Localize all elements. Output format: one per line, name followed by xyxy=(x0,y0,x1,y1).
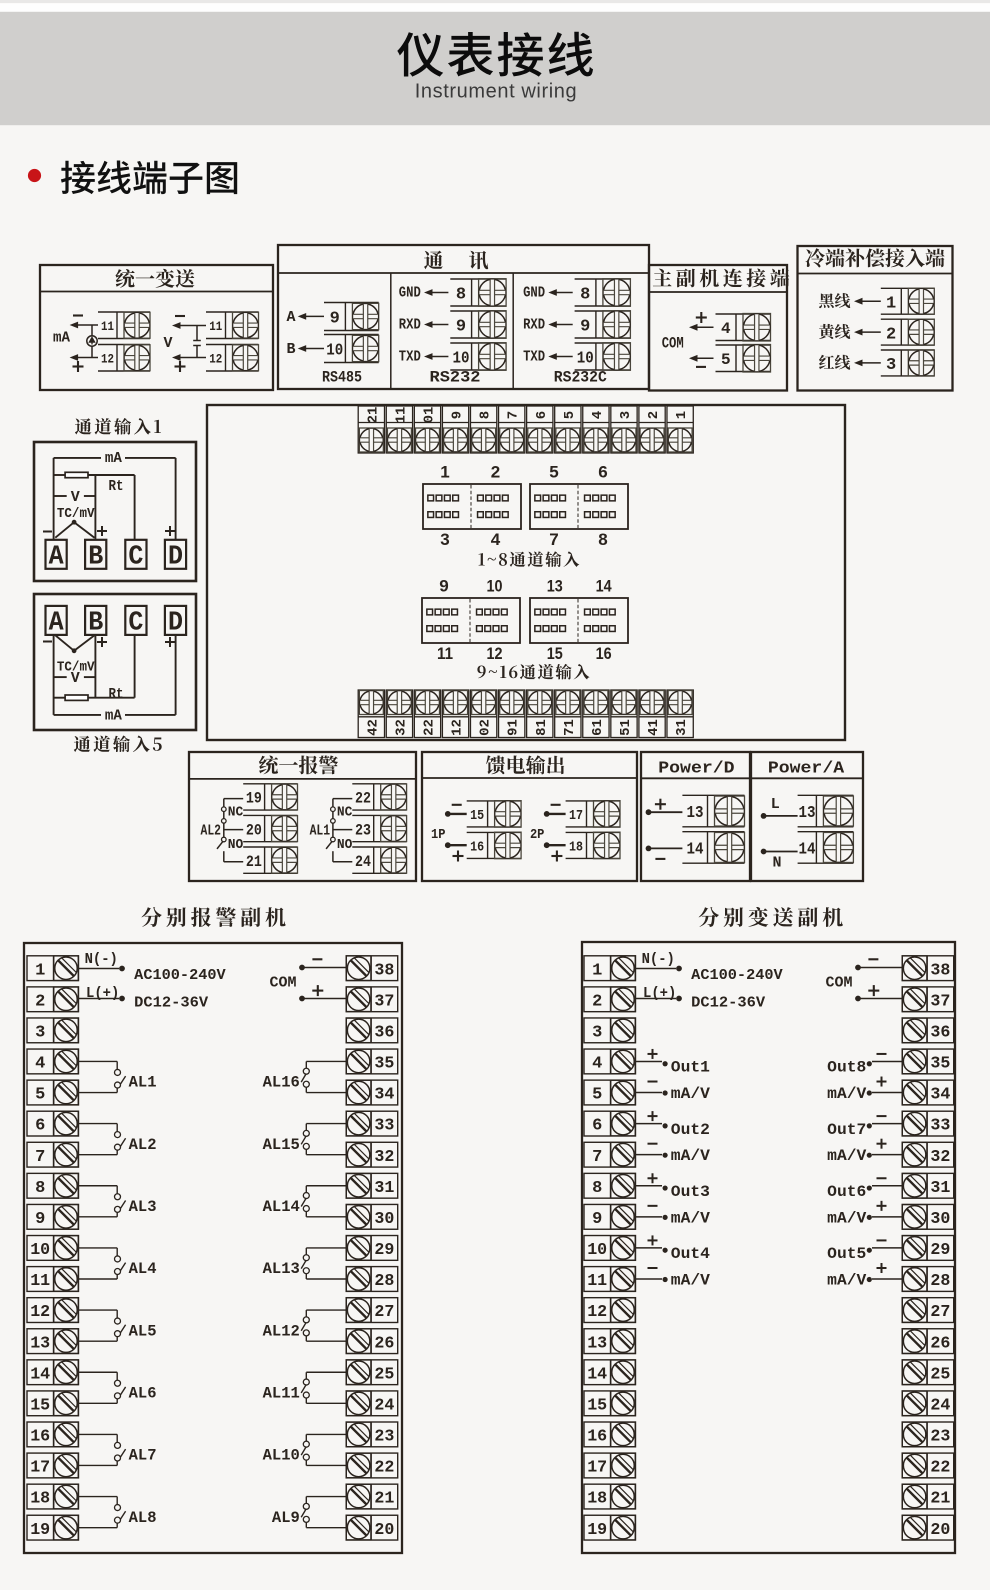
svg-text:9: 9 xyxy=(439,577,448,596)
svg-text:5: 5 xyxy=(35,1086,45,1105)
svg-text:AL2: AL2 xyxy=(201,822,222,839)
svg-text:Rt: Rt xyxy=(109,686,124,703)
svg-text:15: 15 xyxy=(30,1396,50,1415)
svg-text:22: 22 xyxy=(421,719,437,736)
svg-text:C: C xyxy=(128,542,143,572)
svg-text:NO: NO xyxy=(337,837,353,853)
svg-text:mA: mA xyxy=(53,330,70,347)
svg-text:19: 19 xyxy=(30,1521,50,1540)
svg-text:6: 6 xyxy=(35,1117,45,1136)
svg-text:DC12-36V: DC12-36V xyxy=(134,994,208,1011)
svg-text:12: 12 xyxy=(450,719,466,736)
svg-text:29: 29 xyxy=(374,1241,394,1260)
svg-text:TXD: TXD xyxy=(399,349,421,366)
svg-text:10: 10 xyxy=(326,342,343,361)
svg-text:N(-): N(-) xyxy=(85,951,118,968)
svg-text:AL13: AL13 xyxy=(263,1260,300,1278)
svg-text:22: 22 xyxy=(355,790,371,808)
svg-text:AL8: AL8 xyxy=(129,1509,157,1527)
svg-text:Out4: Out4 xyxy=(671,1245,711,1263)
svg-text:AL9: AL9 xyxy=(272,1509,300,1527)
svg-text:12: 12 xyxy=(101,351,114,366)
svg-text:3: 3 xyxy=(618,411,634,419)
svg-text:GND: GND xyxy=(523,285,545,302)
svg-text:RXD: RXD xyxy=(399,317,421,334)
svg-text:17: 17 xyxy=(569,808,583,824)
svg-text:A: A xyxy=(286,309,295,326)
svg-text:30: 30 xyxy=(374,1210,394,1229)
svg-text:16: 16 xyxy=(587,1428,607,1447)
svg-text:AL15: AL15 xyxy=(263,1136,300,1154)
svg-text:B: B xyxy=(88,608,103,638)
svg-text:AC100-240V: AC100-240V xyxy=(134,967,226,984)
svg-text:AC100-240V: AC100-240V xyxy=(691,967,783,984)
svg-text:7: 7 xyxy=(35,1148,45,1167)
svg-text:9: 9 xyxy=(456,318,466,337)
svg-text:A: A xyxy=(49,608,65,638)
svg-text:8: 8 xyxy=(592,1179,602,1198)
svg-text:4: 4 xyxy=(491,530,501,549)
svg-text:2: 2 xyxy=(886,325,896,344)
svg-text:31: 31 xyxy=(930,1179,950,1198)
svg-text:21: 21 xyxy=(930,1490,950,1509)
svg-text:1P: 1P xyxy=(431,827,446,843)
svg-text:13: 13 xyxy=(799,804,816,823)
svg-text:Out8: Out8 xyxy=(827,1059,866,1077)
svg-text:26: 26 xyxy=(374,1334,394,1353)
svg-text:9: 9 xyxy=(35,1210,45,1229)
svg-text:Out5: Out5 xyxy=(827,1245,866,1263)
svg-text:AL2: AL2 xyxy=(129,1136,157,1154)
svg-text:3: 3 xyxy=(35,1023,45,1042)
svg-text:RS232C: RS232C xyxy=(554,369,607,387)
svg-text:AL11: AL11 xyxy=(263,1385,300,1403)
svg-text:14: 14 xyxy=(596,577,612,596)
svg-text:33: 33 xyxy=(930,1117,950,1136)
svg-text:11: 11 xyxy=(437,644,453,663)
svg-text:mA/V: mA/V xyxy=(827,1085,867,1103)
svg-text:24: 24 xyxy=(374,1396,394,1415)
svg-text:42: 42 xyxy=(365,719,381,736)
svg-text:9: 9 xyxy=(580,318,590,337)
svg-text:22: 22 xyxy=(374,1459,394,1478)
svg-text:11: 11 xyxy=(209,319,222,334)
svg-text:12: 12 xyxy=(487,644,503,663)
svg-text:8: 8 xyxy=(478,411,494,419)
svg-text:RXD: RXD xyxy=(523,317,545,334)
svg-text:32: 32 xyxy=(930,1148,950,1167)
svg-text:2: 2 xyxy=(646,411,662,419)
svg-text:1: 1 xyxy=(35,961,45,980)
svg-text:11: 11 xyxy=(30,1272,50,1291)
svg-text:51: 51 xyxy=(618,719,634,736)
svg-text:mA/V: mA/V xyxy=(827,1209,867,1227)
svg-text:AL14: AL14 xyxy=(263,1198,301,1216)
svg-text:AL4: AL4 xyxy=(129,1260,157,1278)
svg-text:36: 36 xyxy=(374,1023,394,1042)
svg-text:41: 41 xyxy=(646,719,662,736)
svg-text:23: 23 xyxy=(930,1428,950,1447)
svg-text:16: 16 xyxy=(470,839,484,855)
svg-text:AL6: AL6 xyxy=(129,1385,157,1403)
svg-text:71: 71 xyxy=(562,719,578,736)
svg-text:21: 21 xyxy=(374,1490,394,1509)
svg-text:24: 24 xyxy=(355,853,371,871)
svg-text:COM: COM xyxy=(662,334,684,352)
svg-text:11: 11 xyxy=(393,407,409,424)
svg-text:AL1: AL1 xyxy=(310,822,331,839)
svg-text:B: B xyxy=(286,341,295,358)
svg-text:34: 34 xyxy=(930,1086,950,1105)
svg-text:38: 38 xyxy=(374,961,394,980)
svg-text:mA/V: mA/V xyxy=(671,1147,711,1165)
svg-text:3: 3 xyxy=(592,1023,602,1042)
svg-text:15: 15 xyxy=(470,808,484,824)
svg-text:mA/V: mA/V xyxy=(671,1209,711,1227)
svg-text:11: 11 xyxy=(587,1272,607,1291)
svg-text:13: 13 xyxy=(30,1334,50,1353)
svg-text:28: 28 xyxy=(374,1272,394,1291)
svg-text:4: 4 xyxy=(590,411,606,419)
svg-text:GND: GND xyxy=(399,285,421,302)
svg-text:5: 5 xyxy=(562,411,578,419)
svg-text:9: 9 xyxy=(592,1210,602,1229)
svg-text:B: B xyxy=(88,542,103,572)
svg-text:D: D xyxy=(168,542,183,572)
svg-text:C: C xyxy=(128,608,143,638)
svg-text:6: 6 xyxy=(598,463,607,482)
svg-text:14: 14 xyxy=(30,1365,50,1384)
svg-text:1: 1 xyxy=(886,294,896,313)
svg-text:3: 3 xyxy=(886,356,896,375)
svg-text:31: 31 xyxy=(674,719,690,736)
svg-text:27: 27 xyxy=(374,1303,394,1322)
svg-text:COM: COM xyxy=(826,975,853,992)
svg-text:1: 1 xyxy=(592,961,602,980)
svg-text:7: 7 xyxy=(549,530,558,549)
svg-text:21: 21 xyxy=(246,853,262,871)
svg-text:Out2: Out2 xyxy=(671,1121,710,1139)
svg-text:COM: COM xyxy=(270,975,297,992)
svg-text:14: 14 xyxy=(587,1365,607,1384)
svg-text:81: 81 xyxy=(534,719,550,736)
svg-text:15: 15 xyxy=(547,644,563,663)
svg-text:10: 10 xyxy=(487,577,503,596)
svg-text:TC/mV: TC/mV xyxy=(57,506,95,522)
svg-text:6: 6 xyxy=(592,1117,602,1136)
svg-text:N(-): N(-) xyxy=(642,951,675,968)
svg-text:24: 24 xyxy=(930,1396,950,1415)
svg-text:20: 20 xyxy=(374,1521,394,1540)
svg-text:mA/V: mA/V xyxy=(671,1272,711,1290)
svg-text:mA/V: mA/V xyxy=(671,1085,711,1103)
svg-text:13: 13 xyxy=(587,1334,607,1353)
svg-text:36: 36 xyxy=(930,1023,950,1042)
svg-text:10: 10 xyxy=(452,350,469,369)
svg-text:32: 32 xyxy=(393,719,409,736)
svg-text:8: 8 xyxy=(580,286,590,305)
svg-text:21: 21 xyxy=(365,407,381,424)
svg-text:Rt: Rt xyxy=(109,478,124,495)
svg-text:L: L xyxy=(771,796,780,813)
svg-text:14: 14 xyxy=(686,841,703,860)
svg-text:02: 02 xyxy=(478,719,494,736)
svg-text:1: 1 xyxy=(674,411,690,419)
svg-text:2P: 2P xyxy=(530,827,545,843)
svg-text:NC: NC xyxy=(228,805,244,821)
svg-text:V: V xyxy=(71,670,80,687)
svg-text:8: 8 xyxy=(598,530,607,549)
svg-text:5: 5 xyxy=(721,351,731,369)
svg-text:12: 12 xyxy=(587,1303,607,1322)
svg-text:mA/V: mA/V xyxy=(827,1147,867,1165)
svg-text:4: 4 xyxy=(35,1055,45,1074)
svg-text:5: 5 xyxy=(549,463,558,482)
svg-text:D: D xyxy=(168,608,183,638)
svg-text:38: 38 xyxy=(930,961,950,980)
svg-text:17: 17 xyxy=(587,1459,607,1478)
svg-text:29: 29 xyxy=(930,1241,950,1260)
svg-text:9: 9 xyxy=(330,310,340,329)
svg-text:11: 11 xyxy=(101,319,114,334)
svg-text:13: 13 xyxy=(686,804,703,823)
svg-text:15: 15 xyxy=(587,1396,607,1415)
svg-text:RS485: RS485 xyxy=(322,369,362,387)
svg-text:NO: NO xyxy=(228,837,244,853)
svg-text:N: N xyxy=(772,855,781,872)
svg-text:25: 25 xyxy=(930,1365,950,1384)
svg-text:1: 1 xyxy=(440,463,449,482)
svg-text:mA: mA xyxy=(105,450,122,467)
svg-text:8: 8 xyxy=(35,1179,45,1198)
svg-text:19: 19 xyxy=(587,1521,607,1540)
svg-text:AL3: AL3 xyxy=(129,1198,157,1216)
svg-text:16: 16 xyxy=(596,644,612,663)
svg-text:8: 8 xyxy=(456,286,466,305)
svg-text:30: 30 xyxy=(930,1210,950,1229)
svg-text:37: 37 xyxy=(374,992,394,1011)
svg-text:12: 12 xyxy=(209,351,222,366)
svg-text:35: 35 xyxy=(374,1055,394,1074)
svg-text:17: 17 xyxy=(30,1459,50,1478)
svg-text:AL5: AL5 xyxy=(129,1322,157,1340)
svg-text:4: 4 xyxy=(721,320,731,338)
svg-text:4: 4 xyxy=(592,1055,602,1074)
svg-text:34: 34 xyxy=(374,1086,394,1105)
svg-text:20: 20 xyxy=(246,821,262,839)
svg-text:Out6: Out6 xyxy=(827,1183,866,1201)
svg-text:9: 9 xyxy=(450,411,466,419)
svg-text:mA: mA xyxy=(105,707,122,724)
svg-text:Power/A: Power/A xyxy=(768,759,845,778)
svg-text:01: 01 xyxy=(421,407,437,424)
svg-text:Power/D: Power/D xyxy=(658,759,734,778)
svg-text:10: 10 xyxy=(587,1241,607,1260)
svg-text:Instrument wiring: Instrument wiring xyxy=(415,81,577,103)
svg-text:TXD: TXD xyxy=(523,349,545,366)
svg-text:18: 18 xyxy=(30,1490,50,1509)
svg-text:V: V xyxy=(163,335,172,352)
svg-text:AL16: AL16 xyxy=(263,1074,300,1092)
svg-text:Out7: Out7 xyxy=(827,1121,866,1139)
svg-text:V: V xyxy=(71,489,80,506)
svg-text:91: 91 xyxy=(506,719,522,736)
svg-text:2: 2 xyxy=(491,463,500,482)
svg-text:22: 22 xyxy=(930,1459,950,1478)
svg-text:25: 25 xyxy=(374,1365,394,1384)
svg-text:7: 7 xyxy=(592,1148,602,1167)
svg-text:35: 35 xyxy=(930,1055,950,1074)
svg-text:2: 2 xyxy=(35,992,45,1011)
svg-text:61: 61 xyxy=(590,719,606,736)
svg-text:18: 18 xyxy=(587,1490,607,1509)
svg-text:Out3: Out3 xyxy=(671,1183,710,1201)
svg-text:2: 2 xyxy=(592,992,602,1011)
svg-text:23: 23 xyxy=(355,821,371,839)
svg-text:26: 26 xyxy=(930,1334,950,1353)
svg-text:Out1: Out1 xyxy=(671,1059,710,1077)
svg-text:19: 19 xyxy=(246,790,262,808)
svg-text:16: 16 xyxy=(30,1428,50,1447)
svg-text:37: 37 xyxy=(930,992,950,1011)
svg-text:27: 27 xyxy=(930,1303,950,1322)
svg-text:AL12: AL12 xyxy=(263,1322,300,1340)
svg-text:A: A xyxy=(49,542,65,572)
svg-text:18: 18 xyxy=(569,839,583,855)
svg-text:28: 28 xyxy=(930,1272,950,1291)
svg-text:31: 31 xyxy=(374,1179,394,1198)
svg-text:DC12-36V: DC12-36V xyxy=(691,994,765,1011)
svg-text:AL7: AL7 xyxy=(129,1447,157,1465)
svg-text:mA/V: mA/V xyxy=(827,1272,867,1290)
svg-text:10: 10 xyxy=(30,1241,50,1260)
svg-text:AL10: AL10 xyxy=(263,1447,300,1465)
svg-text:12: 12 xyxy=(30,1303,50,1322)
svg-text:20: 20 xyxy=(930,1521,950,1540)
svg-text:13: 13 xyxy=(547,577,563,596)
svg-text:5: 5 xyxy=(592,1086,602,1105)
svg-text:14: 14 xyxy=(799,841,816,860)
svg-text:6: 6 xyxy=(534,411,550,419)
svg-text:33: 33 xyxy=(374,1117,394,1136)
svg-text:3: 3 xyxy=(440,530,449,549)
svg-text:AL1: AL1 xyxy=(129,1074,157,1092)
svg-text:23: 23 xyxy=(374,1428,394,1447)
svg-text:10: 10 xyxy=(577,350,594,369)
svg-text:RS232: RS232 xyxy=(430,369,481,387)
svg-text:NC: NC xyxy=(337,805,353,821)
svg-text:7: 7 xyxy=(506,411,522,419)
svg-text:32: 32 xyxy=(374,1148,394,1167)
